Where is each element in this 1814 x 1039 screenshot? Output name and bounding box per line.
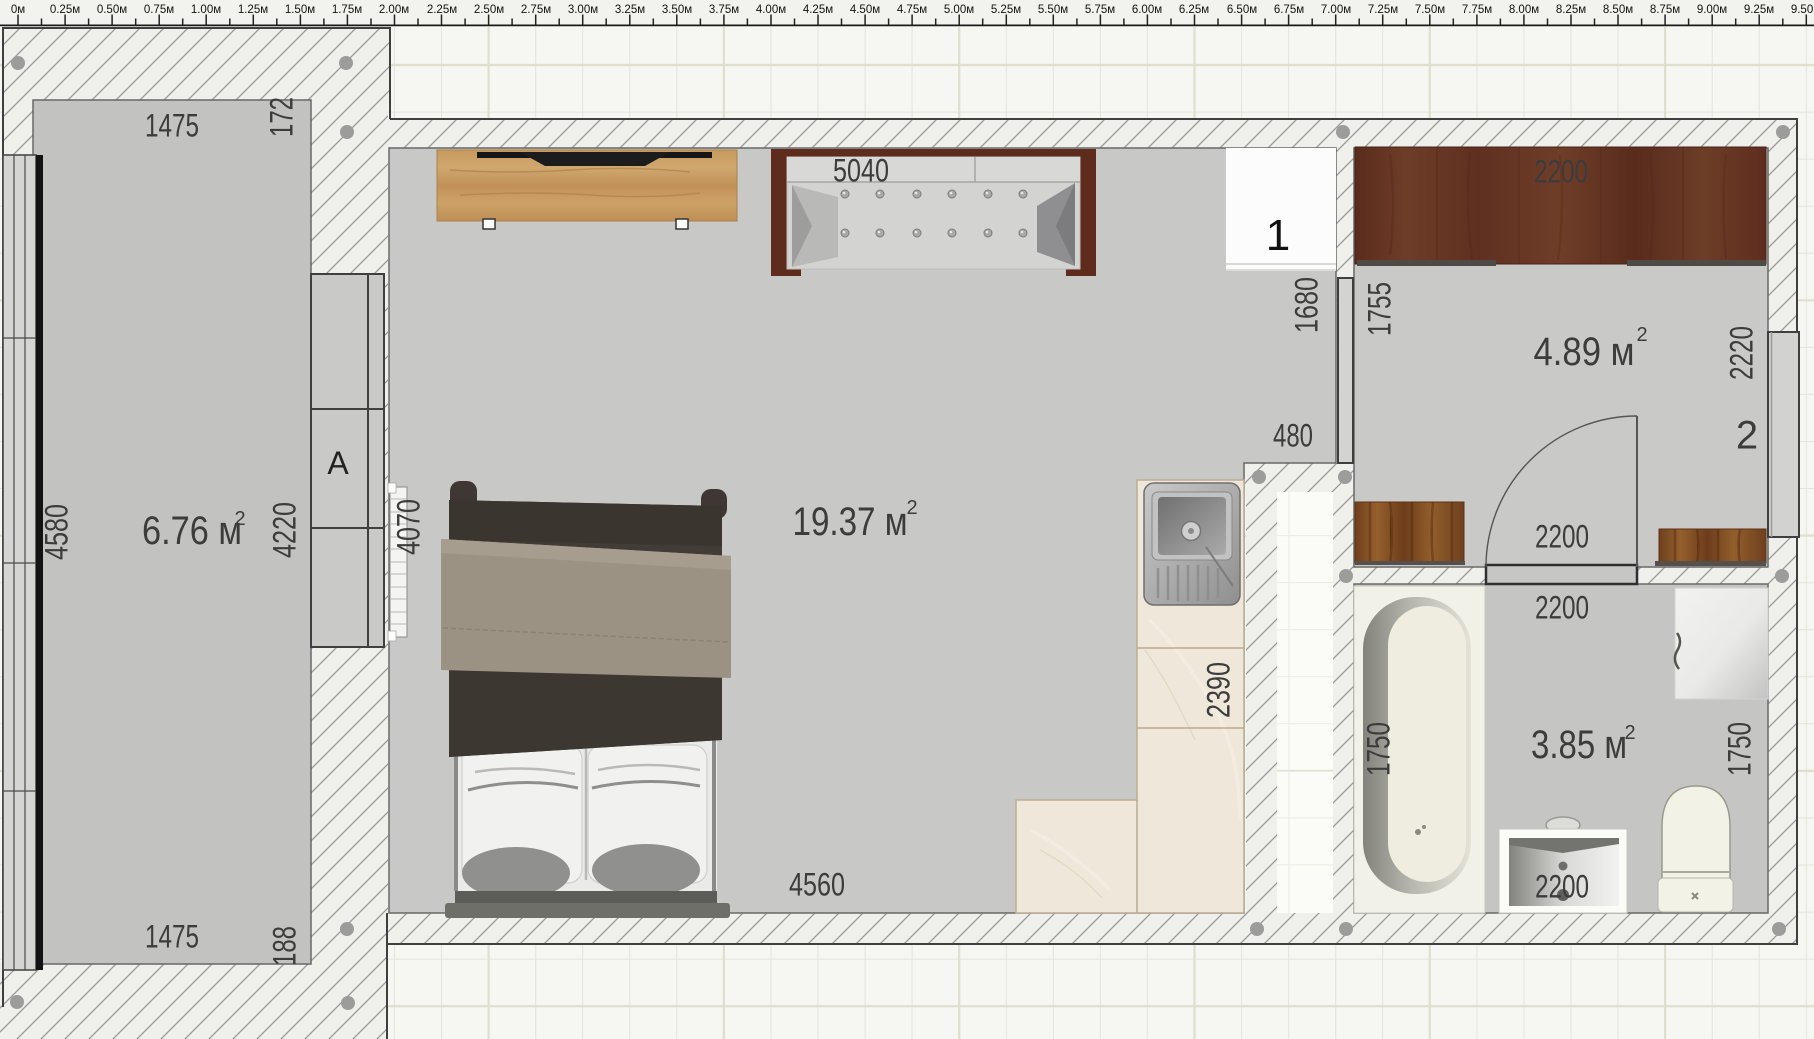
svg-text:2.00м: 2.00м <box>379 4 409 16</box>
svg-text:7.00м: 7.00м <box>1321 4 1351 16</box>
svg-text:0.25м: 0.25м <box>50 4 80 16</box>
svg-text:7.75м: 7.75м <box>1462 4 1492 16</box>
svg-text:2390: 2390 <box>1201 662 1237 718</box>
svg-text:1475: 1475 <box>145 919 199 955</box>
svg-text:4220: 4220 <box>267 502 303 558</box>
svg-text:4560: 4560 <box>789 867 845 903</box>
svg-text:1750: 1750 <box>1722 722 1758 776</box>
svg-text:0.75м: 0.75м <box>144 4 174 16</box>
svg-text:1475: 1475 <box>145 108 199 144</box>
svg-text:4.89 м: 4.89 м <box>1534 330 1635 374</box>
svg-text:2.25м: 2.25м <box>427 4 457 16</box>
svg-text:1755: 1755 <box>1362 282 1398 336</box>
svg-text:1: 1 <box>1266 211 1290 260</box>
svg-text:1.50м: 1.50м <box>285 4 315 16</box>
svg-text:8.75м: 8.75м <box>1650 4 1680 16</box>
svg-text:7.50м: 7.50м <box>1415 4 1445 16</box>
svg-text:172: 172 <box>264 97 300 137</box>
svg-text:3.75м: 3.75м <box>709 4 739 16</box>
svg-text:6.50м: 6.50м <box>1227 4 1257 16</box>
svg-text:8.00м: 8.00м <box>1509 4 1539 16</box>
svg-text:2.50м: 2.50м <box>474 4 504 16</box>
svg-text:9.00м: 9.00м <box>1697 4 1727 16</box>
svg-text:3.00м: 3.00м <box>568 4 598 16</box>
svg-text:4.25м: 4.25м <box>803 4 833 16</box>
svg-text:6.25м: 6.25м <box>1179 4 1209 16</box>
svg-text:188: 188 <box>267 926 303 966</box>
svg-text:2.75м: 2.75м <box>521 4 551 16</box>
svg-text:5.50м: 5.50м <box>1038 4 1068 16</box>
svg-text:5.00м: 5.00м <box>944 4 974 16</box>
svg-text:0м: 0м <box>11 4 25 16</box>
svg-text:1.25м: 1.25м <box>238 4 268 16</box>
svg-text:7.25м: 7.25м <box>1368 4 1398 16</box>
svg-text:4.75м: 4.75м <box>897 4 927 16</box>
svg-text:2: 2 <box>1736 413 1758 457</box>
svg-text:9.25м: 9.25м <box>1744 4 1774 16</box>
svg-text:1.00м: 1.00м <box>191 4 221 16</box>
svg-text:A: A <box>327 445 349 481</box>
svg-text:2: 2 <box>1636 324 1647 346</box>
svg-text:2: 2 <box>234 508 245 530</box>
svg-text:6.76 м: 6.76 м <box>142 509 242 553</box>
svg-text:2200: 2200 <box>1534 154 1588 190</box>
svg-text:1.75м: 1.75м <box>332 4 362 16</box>
svg-text:6.75м: 6.75м <box>1274 4 1304 16</box>
svg-text:9.50м: 9.50м <box>1791 4 1814 16</box>
svg-text:3.50м: 3.50м <box>662 4 692 16</box>
svg-text:6.00м: 6.00м <box>1132 4 1162 16</box>
svg-text:8.50м: 8.50м <box>1603 4 1633 16</box>
svg-text:19.37 м: 19.37 м <box>793 500 908 544</box>
svg-text:2: 2 <box>906 497 917 519</box>
svg-text:5040: 5040 <box>833 153 889 189</box>
svg-text:2220: 2220 <box>1724 326 1760 380</box>
svg-text:1750: 1750 <box>1361 722 1397 776</box>
svg-text:4070: 4070 <box>391 499 427 555</box>
svg-text:3.85 м: 3.85 м <box>1531 723 1627 767</box>
svg-text:2200: 2200 <box>1535 869 1589 905</box>
svg-text:0.50м: 0.50м <box>97 4 127 16</box>
svg-text:4.50м: 4.50м <box>850 4 880 16</box>
svg-text:480: 480 <box>1273 418 1313 454</box>
svg-text:5.25м: 5.25м <box>991 4 1021 16</box>
svg-text:2200: 2200 <box>1535 590 1589 626</box>
svg-text:4.00м: 4.00м <box>756 4 786 16</box>
svg-text:2200: 2200 <box>1535 519 1589 555</box>
svg-text:5.75м: 5.75м <box>1085 4 1115 16</box>
svg-text:2: 2 <box>1624 722 1635 744</box>
svg-text:4580: 4580 <box>39 504 75 560</box>
svg-text:8.25м: 8.25м <box>1556 4 1586 16</box>
svg-text:1680: 1680 <box>1289 277 1325 333</box>
svg-text:3.25м: 3.25м <box>615 4 645 16</box>
